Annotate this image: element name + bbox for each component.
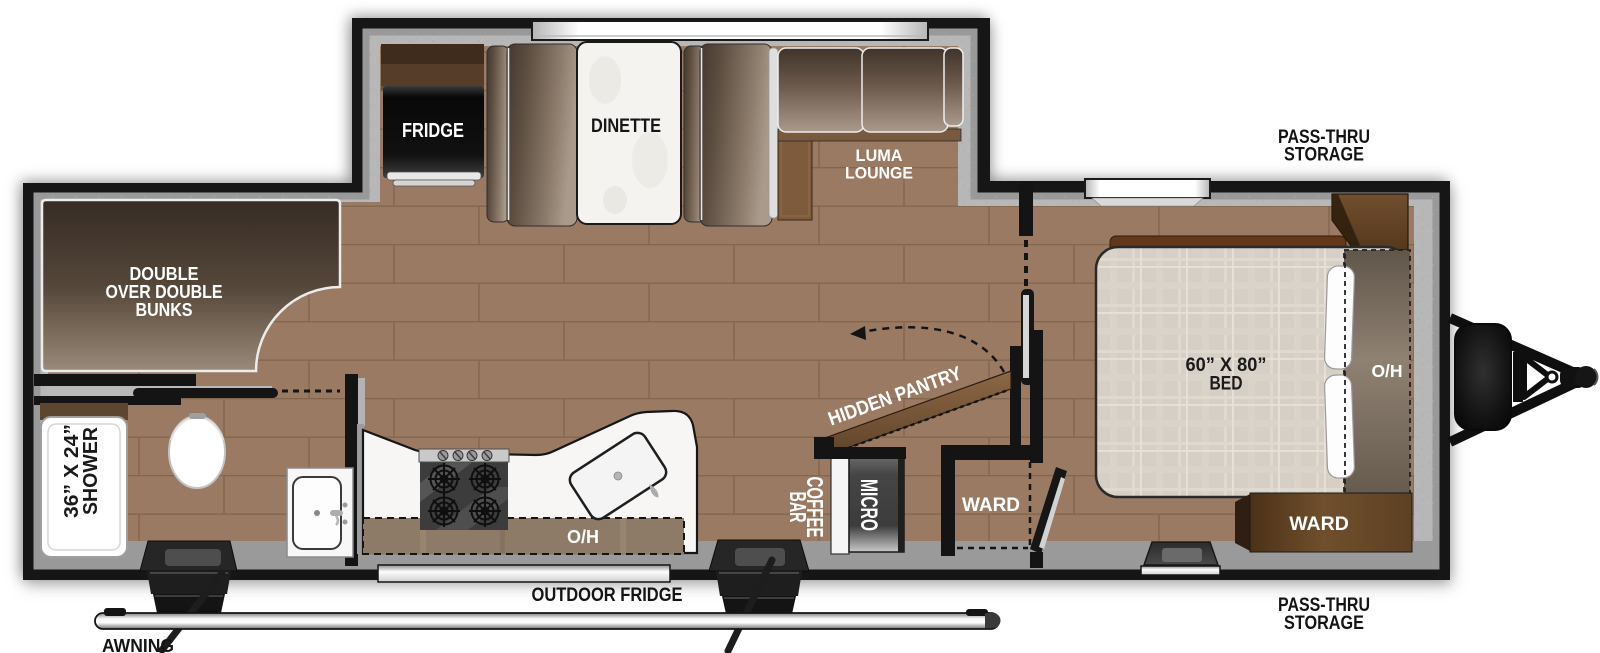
- svg-text:O/H: O/H: [1371, 361, 1402, 381]
- svg-text:BUNKS: BUNKS: [136, 299, 193, 320]
- svg-text:STORAGE: STORAGE: [1284, 613, 1364, 634]
- svg-text:LUMA: LUMA: [856, 146, 903, 165]
- svg-text:STORAGE: STORAGE: [1284, 145, 1364, 166]
- svg-text:MICRO: MICRO: [855, 479, 882, 531]
- svg-text:O/H: O/H: [567, 527, 599, 547]
- svg-text:LOUNGE: LOUNGE: [845, 164, 913, 183]
- svg-text:OUTDOOR FRIDGE: OUTDOOR FRIDGE: [532, 585, 683, 606]
- svg-text:WARD: WARD: [962, 495, 1020, 516]
- svg-text:DINETTE: DINETTE: [591, 116, 661, 137]
- svg-text:AWNING: AWNING: [102, 636, 174, 653]
- svg-text:SHOWER: SHOWER: [80, 426, 102, 515]
- svg-text:FRIDGE: FRIDGE: [402, 120, 464, 142]
- svg-text:BED: BED: [1210, 374, 1243, 395]
- svg-text:WARD: WARD: [1289, 513, 1349, 535]
